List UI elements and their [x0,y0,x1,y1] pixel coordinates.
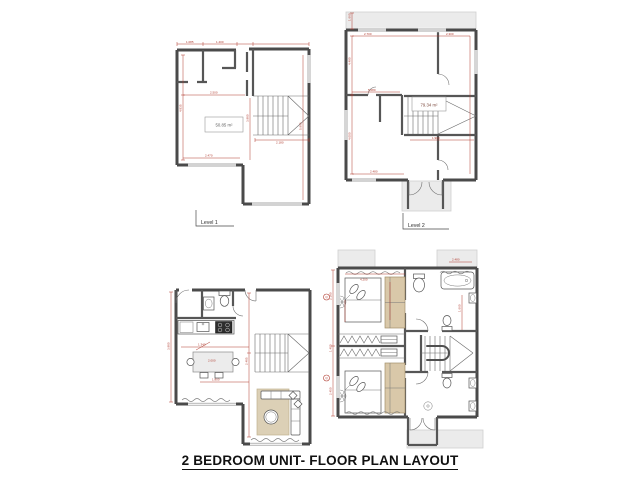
bathroom-sink [204,297,215,310]
dimension-label: 2.500 [210,91,218,95]
dimension-label: 1.900 [432,136,440,140]
wardrobe-1 [385,277,405,328]
window [307,55,311,83]
dining-table [187,352,239,378]
dimension-label: 2.485 [245,357,249,365]
dimension-label: 1.800 [212,378,220,382]
walls-interior [346,31,476,180]
level-label: Level 2 [408,223,425,229]
window [188,163,236,167]
plan-level2-dimensions: 2.700 2.300 4.490 4.000 5.080 2.480 1.90… [344,12,478,229]
dining-chair [200,373,208,379]
window [418,28,446,32]
walls-exterior [346,30,476,180]
floor-plan-sheet: 1.085 1.400 2.500 4.835 2.470 5.965 2.18… [0,0,640,480]
dimension-label: 2.300 [446,32,454,36]
dimension-label: 1.660 [348,13,352,21]
coffee-table [264,410,278,424]
bathtub [441,272,474,289]
toilet [442,316,452,331]
dimension-label: 1.400 [329,344,333,352]
balcony-slab [346,12,476,30]
bathroom-sink [414,274,425,292]
dimension-lines: 2.700 2.300 4.490 4.000 5.080 2.480 1.90… [348,13,475,174]
stairs [421,336,473,371]
dimension-label: 2.700 [364,32,372,36]
wardrobe-2 [385,363,405,413]
roof-slab [338,250,375,268]
dimension-label: 5.080 [368,88,376,92]
dimension-label: 1.085 [186,40,194,44]
dimension-label: 5.965 [299,122,303,130]
bathroom-door-arc [233,306,243,316]
window [358,28,386,32]
curtain-wavy [251,439,299,442]
dimension-label: 4.835 [179,104,183,112]
kitchen-counter [178,321,234,335]
floor-plan-drawing: 1.085 1.400 2.500 4.835 2.470 5.965 2.18… [0,0,640,480]
window [474,50,478,74]
window [352,178,376,182]
balcony-door-arcs [410,418,435,430]
dimension-label: 2.480 [452,258,460,262]
dimension-label: 2.000 [208,359,216,363]
dimension-label: 4.200 [360,278,368,282]
plan-level2-furnished: 4.200 2.180 1.400 2.450 2.480 1.660 [329,250,484,448]
dimension-label: 4.000 [348,132,352,140]
sheet-title: 2 BEDROOM UNIT- FLOOR PLAN LAYOUT [0,453,640,468]
kitchen-sink [197,323,209,332]
curtain-wavy [182,399,230,402]
wall-sink [469,293,477,303]
dining-chair [232,358,239,365]
floor-drain [424,402,432,410]
dining-chair [187,358,194,365]
toilet [442,374,452,389]
level-label: Level 1 [201,220,218,226]
cooktop [216,322,233,334]
dimension-label: 2.470 [205,154,213,158]
dimension-label: 3.980 [246,114,250,122]
area-label: 50.85 m² [216,123,234,128]
plan-level1-furnished: 2.000 1.340 2.485 3.980 1.800 [167,288,311,447]
stairs [255,334,309,372]
dimension-label: 1.400 [216,40,224,44]
wall-sink [469,378,477,388]
bed-1 [345,278,381,322]
dimension-label: 1.340 [198,343,206,347]
wall-sink [469,401,477,411]
bed-2 [345,371,381,413]
svg-text:Q: Q [325,376,328,380]
dimension-label: 2.480 [370,170,378,174]
plan-level1-dimensions: 1.085 1.400 2.500 4.835 2.470 5.965 2.18… [177,40,311,226]
window [252,202,302,206]
dimension-label: 3.980 [167,342,171,350]
toilet [219,291,230,306]
walls-interior [177,49,253,96]
area-label: 79.34 m² [421,102,439,107]
dimension-label: 2.180 [329,292,333,300]
dimension-label: 1.660 [458,304,462,312]
dimension-label: 2.450 [329,387,333,395]
grid-marker-bottom: Q [324,375,330,381]
dimension-label: 2.180 [276,141,284,145]
dimension-label: 4.490 [348,57,352,65]
